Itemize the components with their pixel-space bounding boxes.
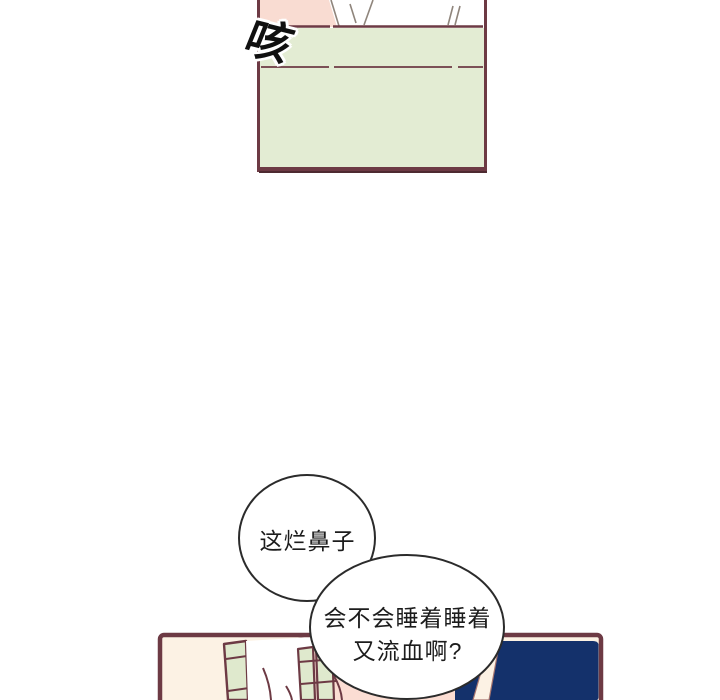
bottom-art [0,0,720,700]
comic-page: 咳 [0,0,720,700]
bubble-2-line-2: 又流血啊? [305,635,510,668]
bubble-2-line-1: 会不会睡着睡着 [305,602,510,635]
bedpost-left [224,641,248,700]
bubble-1-text: 这烂鼻子 [235,522,380,556]
bubble-2-text: 会不会睡着睡着 又流血啊? [305,602,510,668]
